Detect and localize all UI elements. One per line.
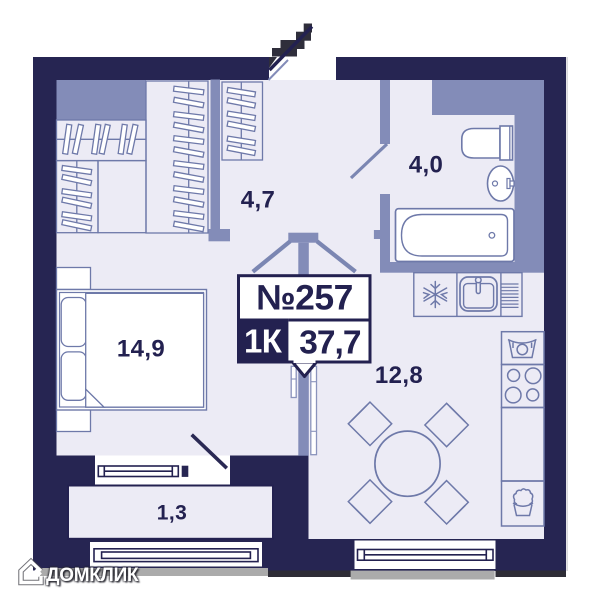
svg-text:ДОМКЛИК: ДОМКЛИК	[46, 565, 139, 586]
svg-text:4,0: 4,0	[409, 152, 444, 179]
svg-text:1,3: 1,3	[157, 502, 187, 525]
svg-text:14,9: 14,9	[117, 336, 165, 363]
svg-text:1К: 1К	[244, 323, 283, 360]
svg-text:12,8: 12,8	[375, 362, 423, 389]
svg-text:№257: №257	[256, 278, 353, 318]
svg-text:37,7: 37,7	[299, 324, 361, 361]
svg-text:4,7: 4,7	[241, 187, 276, 214]
